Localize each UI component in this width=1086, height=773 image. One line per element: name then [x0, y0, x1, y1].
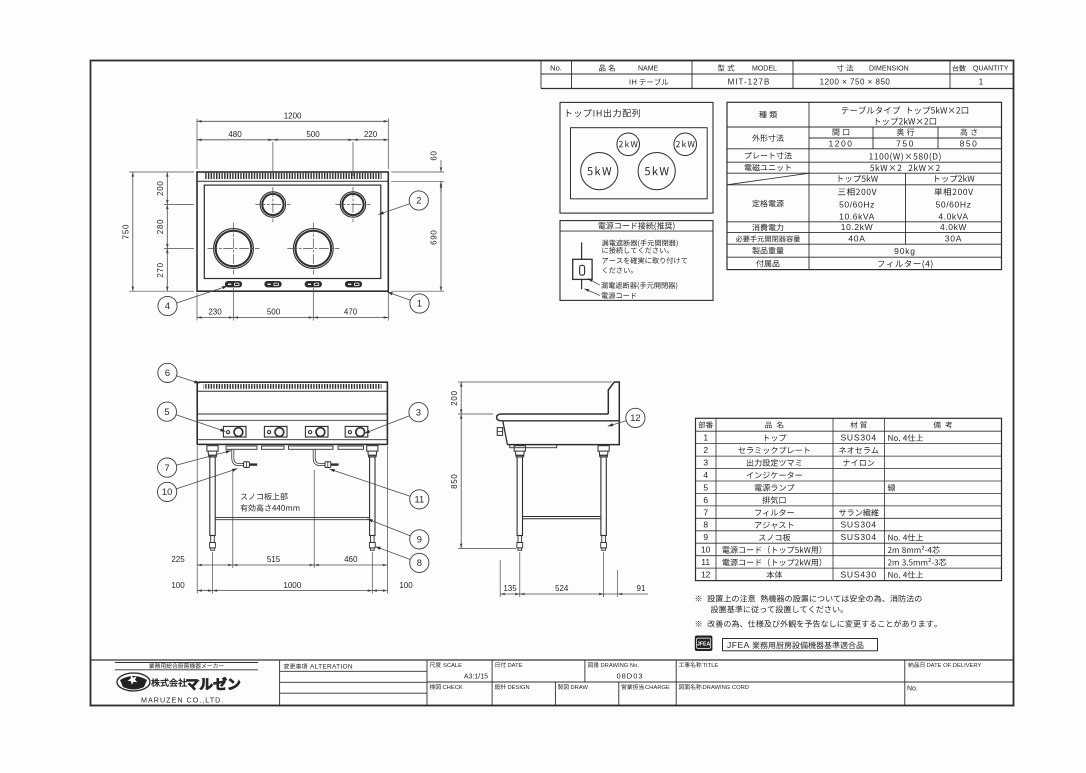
svg-text:100: 100	[171, 581, 185, 590]
svg-text:10: 10	[162, 487, 172, 497]
svg-text:IH: IH	[629, 78, 637, 87]
svg-text:470: 470	[344, 308, 358, 317]
svg-text:MODEL: MODEL	[752, 66, 777, 73]
svg-text:TITLE: TITLE	[703, 663, 719, 669]
svg-text:DRAWING No.: DRAWING No.	[601, 663, 640, 669]
svg-text:6: 6	[165, 368, 170, 378]
svg-text:515: 515	[267, 555, 281, 564]
svg-text:10: 10	[701, 545, 711, 555]
svg-text:8: 8	[417, 558, 422, 568]
svg-text:MARUZEN CO.,LTD.: MARUZEN CO.,LTD.	[141, 696, 224, 705]
svg-text:9: 9	[417, 535, 422, 545]
svg-text:30A: 30A	[945, 234, 963, 244]
svg-text:SUS304: SUS304	[840, 433, 876, 443]
svg-text:8: 8	[703, 520, 708, 530]
svg-text:2: 2	[703, 445, 708, 455]
svg-text:SUS304: SUS304	[840, 520, 876, 530]
svg-text:270: 270	[156, 262, 165, 277]
svg-text:9: 9	[703, 532, 708, 542]
svg-text:NAME: NAME	[638, 66, 659, 73]
svg-text:QUANTITY: QUANTITY	[973, 66, 1009, 73]
svg-text:5: 5	[164, 407, 169, 417]
svg-text:ALTERATION: ALTERATION	[310, 663, 353, 670]
svg-text:91: 91	[637, 584, 646, 593]
svg-text:2: 2	[416, 196, 421, 206]
svg-text:08D03: 08D03	[616, 672, 643, 681]
svg-text:DRAWING CORD: DRAWING CORD	[703, 685, 749, 691]
svg-text:DRAW: DRAW	[571, 685, 589, 691]
svg-text:1000: 1000	[283, 581, 301, 590]
svg-text:40A: 40A	[848, 234, 866, 244]
svg-text:500: 500	[267, 308, 281, 317]
svg-text:12: 12	[630, 413, 640, 423]
svg-text:1200: 1200	[284, 112, 302, 121]
svg-text:1200: 1200	[829, 138, 854, 148]
svg-text:JFEA: JFEA	[697, 642, 711, 648]
svg-text:No.: No.	[550, 64, 562, 73]
svg-text:A3:1/15: A3:1/15	[464, 674, 488, 681]
svg-text:850: 850	[450, 473, 459, 488]
svg-text:100: 100	[399, 581, 413, 590]
svg-text:3: 3	[703, 458, 708, 468]
svg-text:SUS304: SUS304	[840, 532, 876, 542]
svg-text:CHARGE: CHARGE	[645, 685, 670, 691]
svg-text:7: 7	[165, 463, 170, 473]
svg-text:220: 220	[364, 130, 378, 139]
svg-text:7: 7	[703, 507, 708, 517]
svg-text:11: 11	[701, 557, 710, 567]
svg-text:12: 12	[701, 570, 711, 580]
svg-text:DESIGN: DESIGN	[508, 685, 530, 691]
svg-text:460: 460	[344, 555, 358, 564]
svg-text:750: 750	[896, 138, 915, 148]
svg-text:135: 135	[503, 584, 517, 593]
svg-text:3: 3	[416, 407, 421, 417]
svg-text:225: 225	[171, 555, 185, 564]
svg-text:1: 1	[703, 433, 708, 443]
svg-text:4: 4	[165, 301, 170, 311]
svg-text:230: 230	[208, 308, 222, 317]
svg-text:MIT-127B: MIT-127B	[728, 78, 771, 87]
svg-text:JFEA: JFEA	[727, 640, 750, 650]
svg-text:200: 200	[156, 180, 165, 195]
svg-text:DIMENSION: DIMENSION	[869, 66, 909, 73]
svg-text:SUS430: SUS430	[840, 570, 876, 580]
svg-text:50/60Hz: 50/60Hz	[936, 200, 972, 210]
svg-text:280: 280	[156, 219, 165, 234]
svg-text:50/60Hz: 50/60Hz	[839, 200, 875, 210]
svg-text:11: 11	[414, 495, 424, 505]
svg-text:CHECK: CHECK	[443, 685, 463, 691]
svg-text:No.: No.	[907, 686, 918, 693]
svg-text:1: 1	[979, 78, 984, 87]
svg-text:4.0kVA: 4.0kVA	[938, 212, 968, 222]
svg-text:SCALE: SCALE	[443, 663, 462, 669]
svg-text:690: 690	[430, 229, 439, 244]
svg-text:1200 × 750 × 850: 1200 × 750 × 850	[820, 78, 891, 87]
svg-text:500: 500	[306, 130, 320, 139]
svg-text:10.2kW: 10.2kW	[841, 222, 873, 232]
svg-text:10.6kVA: 10.6kVA	[839, 212, 875, 222]
svg-text:6: 6	[703, 495, 708, 505]
svg-text:4.0kW: 4.0kW	[940, 222, 967, 232]
svg-text:200: 200	[450, 390, 459, 405]
svg-text:4: 4	[703, 470, 708, 480]
svg-text:1: 1	[417, 299, 422, 309]
svg-text:850: 850	[960, 138, 979, 148]
svg-text:480: 480	[228, 130, 242, 139]
svg-text:DATE: DATE	[508, 663, 523, 669]
svg-text:DATE OF DELIVERY: DATE OF DELIVERY	[927, 663, 982, 669]
svg-text:90kg: 90kg	[894, 246, 916, 256]
svg-text:5: 5	[703, 482, 708, 492]
svg-text:60: 60	[430, 150, 439, 160]
svg-text:524: 524	[555, 584, 569, 593]
svg-text:750: 750	[122, 224, 131, 239]
